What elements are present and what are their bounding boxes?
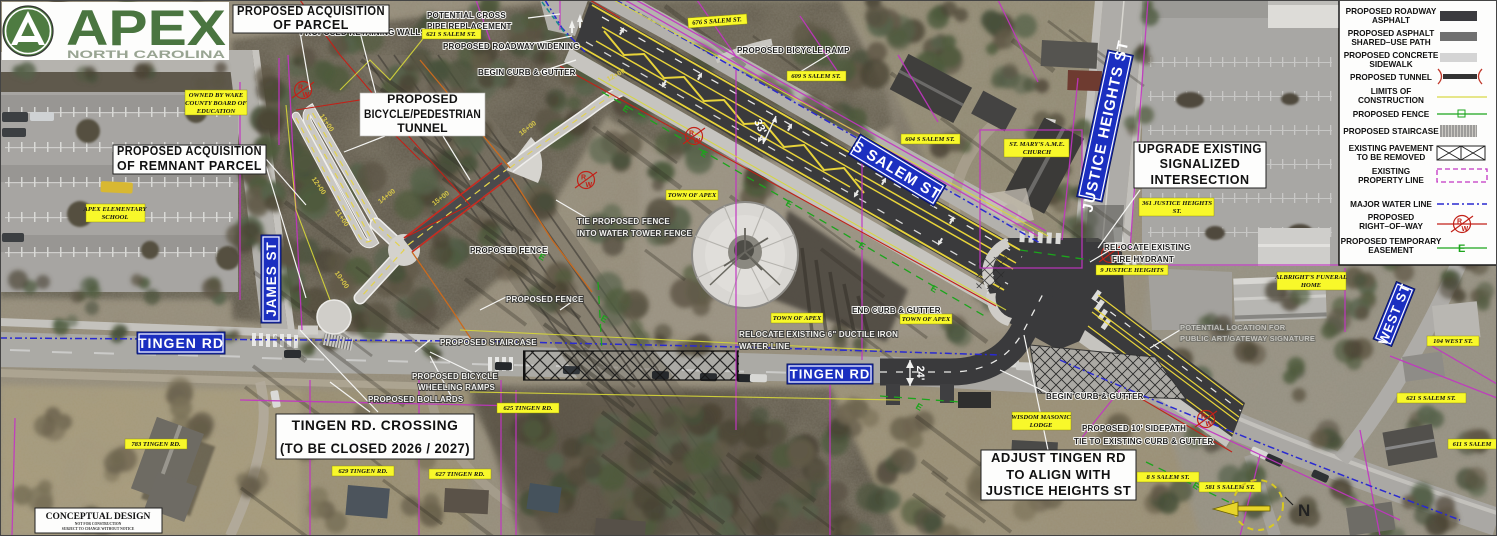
svg-text:BEGIN CURB & GUTTER: BEGIN CURB & GUTTER — [1046, 392, 1144, 401]
svg-text:WATER LINE: WATER LINE — [739, 342, 790, 351]
svg-text:R: R — [298, 85, 303, 92]
svg-text:PROPOSED FENCE: PROPOSED FENCE — [506, 295, 584, 304]
svg-text:INTERSECTION: INTERSECTION — [1150, 173, 1249, 187]
svg-text:PROPOSED: PROPOSED — [1368, 213, 1414, 222]
svg-text:PROPOSED TEMPORARY: PROPOSED TEMPORARY — [1341, 237, 1442, 246]
svg-text:COUNTY BOARD OF: COUNTY BOARD OF — [185, 100, 247, 107]
svg-text:PROPOSED FENCE: PROPOSED FENCE — [1353, 110, 1430, 119]
svg-text:R: R — [689, 131, 694, 138]
svg-text:E: E — [1458, 243, 1465, 255]
svg-text:ST.: ST. — [1173, 208, 1182, 215]
svg-text:581 S SALEM ST.: 581 S SALEM ST. — [1205, 484, 1255, 491]
svg-text:R: R — [1457, 219, 1462, 226]
svg-text:JUSTICE HEIGHTS ST: JUSTICE HEIGHTS ST — [986, 483, 1132, 498]
svg-text:TOWN OF APEX: TOWN OF APEX — [902, 316, 951, 323]
svg-text:MAJOR WATER LINE: MAJOR WATER LINE — [1350, 200, 1432, 209]
svg-text:609 S SALEM ST.: 609 S SALEM ST. — [791, 73, 841, 80]
svg-text:604 S SALEM ST.: 604 S SALEM ST. — [905, 136, 955, 143]
svg-text:ASPHALT: ASPHALT — [1372, 16, 1410, 25]
svg-text:TIE TO EXISTING CURB & GUTTER: TIE TO EXISTING CURB & GUTTER — [1074, 437, 1213, 446]
svg-text:625 TINGEN RD.: 625 TINGEN RD. — [503, 405, 553, 412]
svg-text:SIDEWALK: SIDEWALK — [1369, 60, 1412, 69]
svg-text:TIE PROPOSED FENCE: TIE PROPOSED FENCE — [577, 217, 670, 226]
svg-text:SCHOOL: SCHOOL — [102, 214, 129, 221]
svg-text:PROPOSED 10' SIDEPATH: PROPOSED 10' SIDEPATH — [1082, 424, 1186, 433]
svg-text:SUBJECT TO CHANGE WITHOUT NOTI: SUBJECT TO CHANGE WITHOUT NOTICE — [62, 527, 135, 531]
svg-text:8 S SALEM ST.: 8 S SALEM ST. — [1146, 474, 1189, 481]
svg-text:PROPOSED FENCE: PROPOSED FENCE — [470, 246, 548, 255]
svg-text:(TO BE CLOSED 2026 / 2027): (TO BE CLOSED 2026 / 2027) — [280, 441, 470, 456]
svg-text:HOME: HOME — [1300, 282, 1322, 289]
svg-text:R: R — [1201, 414, 1206, 421]
svg-text:R: R — [581, 175, 586, 182]
svg-text:104 WEST ST.: 104 WEST ST. — [1433, 338, 1473, 345]
svg-text:RELOCATE EXISTING: RELOCATE EXISTING — [1104, 243, 1190, 252]
svg-text:EDUCATION: EDUCATION — [196, 108, 236, 115]
svg-text:ST. MARY'S A.M.E.: ST. MARY'S A.M.E. — [1009, 141, 1065, 148]
svg-text:N: N — [1298, 501, 1310, 520]
svg-text:SIGNALIZED: SIGNALIZED — [1160, 157, 1241, 171]
svg-text:POTENTIAL CROSS: POTENTIAL CROSS — [427, 11, 506, 20]
svg-text:LIMITS OF: LIMITS OF — [1371, 87, 1411, 96]
svg-text:RELOCATE EXISTING 6" DUCTILE I: RELOCATE EXISTING 6" DUCTILE IRON — [739, 330, 898, 339]
svg-text:783 TINGEN RD.: 783 TINGEN RD. — [131, 441, 181, 448]
svg-text:EXISTING: EXISTING — [1372, 167, 1410, 176]
svg-text:APEX: APEX — [66, 0, 226, 56]
svg-text:W: W — [694, 138, 701, 145]
svg-text:JAMES ST: JAMES ST — [264, 241, 279, 317]
svg-text:PROPOSED STAIRCASE: PROPOSED STAIRCASE — [440, 338, 537, 347]
svg-text:361 JUSTICE HEIGHTS: 361 JUSTICE HEIGHTS — [1141, 200, 1212, 207]
svg-text:TOWN OF APEX: TOWN OF APEX — [668, 192, 717, 199]
svg-text:SHARED–USE PATH: SHARED–USE PATH — [1351, 38, 1430, 47]
svg-text:END CURB & GUTTER: END CURB & GUTTER — [852, 306, 941, 315]
svg-text:W: W — [1206, 421, 1213, 428]
svg-text:PROPOSED BICYCLE RAMP: PROPOSED BICYCLE RAMP — [737, 46, 850, 55]
svg-text:FIRE HYDRANT: FIRE HYDRANT — [1112, 255, 1174, 264]
svg-text:UPGRADE EXISTING: UPGRADE EXISTING — [1138, 142, 1262, 156]
svg-text:PROPOSED BICYCLE: PROPOSED BICYCLE — [412, 372, 498, 381]
svg-text:OF PARCEL: OF PARCEL — [273, 18, 349, 32]
svg-text:ADJUST TINGEN RD: ADJUST TINGEN RD — [991, 450, 1126, 465]
svg-text:LODGE: LODGE — [1029, 422, 1053, 429]
svg-text:PROPOSED ACQUISITION: PROPOSED ACQUISITION — [237, 4, 385, 18]
svg-text:APEX ELEMENTARY: APEX ELEMENTARY — [82, 206, 147, 213]
svg-text:NORTH CAROLINA: NORTH CAROLINA — [67, 49, 225, 61]
svg-text:PROPOSED ROADWAY: PROPOSED ROADWAY — [1346, 7, 1437, 16]
svg-text:TINGEN RD: TINGEN RD — [138, 335, 224, 351]
svg-text:PUBLIC ART/GATEWAY SIGNATURE: PUBLIC ART/GATEWAY SIGNATURE — [1180, 334, 1315, 343]
svg-text:WHEELING RAMPS: WHEELING RAMPS — [418, 383, 495, 392]
svg-text:TINGEN RD. CROSSING: TINGEN RD. CROSSING — [292, 418, 459, 433]
svg-text:PROPOSED BOLLARDS: PROPOSED BOLLARDS — [368, 395, 464, 404]
svg-text:TOWN OF APEX: TOWN OF APEX — [773, 315, 822, 322]
svg-text:PROPOSED TUNNEL: PROPOSED TUNNEL — [1350, 73, 1432, 82]
svg-text:PROPOSED ACQUISITION: PROPOSED ACQUISITION — [117, 144, 262, 158]
svg-text:CONCEPTUAL DESIGN: CONCEPTUAL DESIGN — [46, 512, 151, 522]
svg-text:OWNED BY WAKE: OWNED BY WAKE — [189, 92, 244, 99]
svg-text:PROPERTY LINE: PROPERTY LINE — [1358, 176, 1424, 185]
svg-text:PROPOSED ROADWAY WIDENING: PROPOSED ROADWAY WIDENING — [443, 42, 580, 51]
svg-text:TINGEN RD: TINGEN RD — [790, 367, 871, 382]
svg-text:NOT FOR CONSTRUCTION: NOT FOR CONSTRUCTION — [75, 522, 122, 526]
svg-text:EXISTING PAVEMENT: EXISTING PAVEMENT — [1349, 144, 1434, 153]
svg-text:OF REMNANT PARCEL: OF REMNANT PARCEL — [117, 159, 262, 173]
svg-text:CHURCH: CHURCH — [1023, 149, 1052, 156]
svg-text:POTENTIAL LOCATION FOR: POTENTIAL LOCATION FOR — [1180, 323, 1286, 332]
svg-text:9 JUSTICE HEIGHTS: 9 JUSTICE HEIGHTS — [1100, 267, 1164, 274]
svg-text:BICYCLE/PEDESTRIAN: BICYCLE/PEDESTRIAN — [364, 107, 481, 121]
svg-text:PROPOSED STAIRCASE: PROPOSED STAIRCASE — [1343, 127, 1439, 136]
svg-text:629 TINGEN RD.: 629 TINGEN RD. — [338, 468, 388, 475]
svg-text:PROPOSED: PROPOSED — [387, 92, 458, 106]
svg-text:24': 24' — [914, 366, 926, 381]
svg-text:EASEMENT: EASEMENT — [1368, 246, 1414, 255]
svg-text:BEGIN CURB & GUTTER: BEGIN CURB & GUTTER — [478, 68, 576, 77]
svg-text:ALBRIGHT'S FUNERAL: ALBRIGHT'S FUNERAL — [1274, 274, 1347, 281]
svg-text:INTO WATER TOWER FENCE: INTO WATER TOWER FENCE — [577, 229, 693, 238]
svg-text:PROPOSED CONCRETE: PROPOSED CONCRETE — [1344, 51, 1439, 60]
svg-text:WISDOM MASONIC: WISDOM MASONIC — [1011, 414, 1071, 421]
svg-text:W: W — [303, 92, 310, 99]
svg-text:TUNNEL: TUNNEL — [397, 121, 448, 135]
svg-text:611 S SALEM: 611 S SALEM — [1453, 441, 1493, 448]
svg-text:TO ALIGN WITH: TO ALIGN WITH — [1006, 467, 1111, 482]
svg-text:621 S SALEM ST.: 621 S SALEM ST. — [1406, 395, 1456, 402]
svg-text:CONSTRUCTION: CONSTRUCTION — [1358, 96, 1424, 105]
svg-text:W: W — [1462, 226, 1469, 233]
svg-text:621 S SALEM ST.: 621 S SALEM ST. — [426, 31, 476, 38]
svg-text:PROPOSED ASPHALT: PROPOSED ASPHALT — [1348, 29, 1434, 38]
svg-text:RIGHT–OF–WAY: RIGHT–OF–WAY — [1359, 222, 1423, 231]
svg-text:W: W — [586, 182, 593, 189]
svg-text:TO BE REMOVED: TO BE REMOVED — [1357, 153, 1426, 162]
svg-text:627 TINGEN RD.: 627 TINGEN RD. — [435, 471, 485, 478]
